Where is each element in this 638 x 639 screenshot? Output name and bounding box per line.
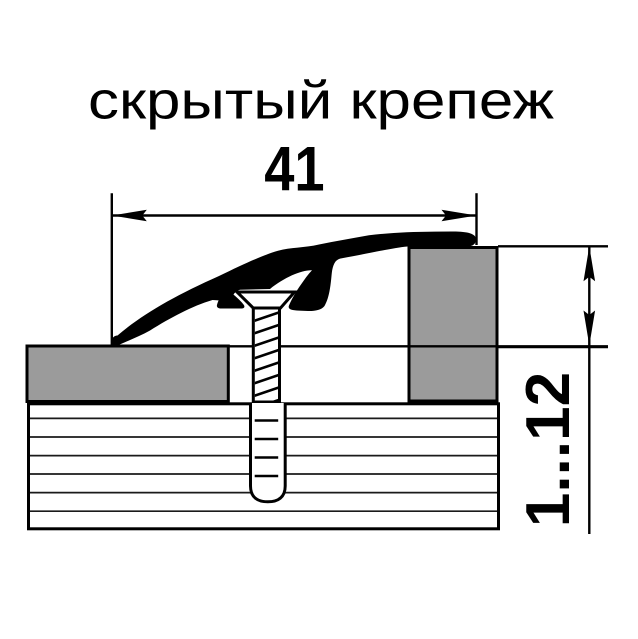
svg-text:скрытый крепеж: скрытый крепеж bbox=[88, 71, 555, 130]
svg-text:41: 41 bbox=[264, 134, 324, 205]
svg-text:1...12: 1...12 bbox=[514, 372, 583, 527]
